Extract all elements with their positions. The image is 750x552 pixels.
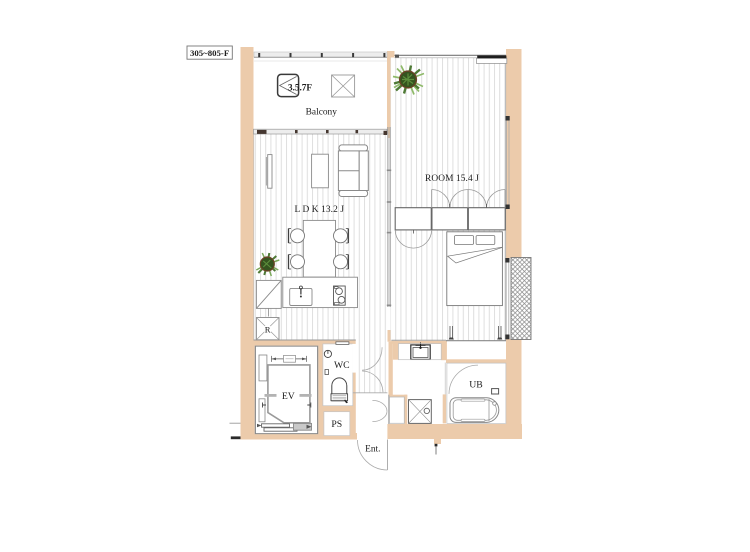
svg-text:UB: UB (469, 379, 482, 390)
svg-text:PS: PS (331, 419, 342, 430)
svg-text:3.5.7F: 3.5.7F (288, 83, 312, 93)
svg-text:Ent.: Ent. (365, 445, 380, 455)
svg-text:305~805-F: 305~805-F (190, 48, 229, 58)
svg-text:R: R (265, 325, 271, 335)
svg-text:ROOM 15.4 J: ROOM 15.4 J (425, 174, 479, 184)
svg-text:Balcony: Balcony (306, 107, 338, 117)
svg-text:WC: WC (334, 360, 350, 371)
svg-text:L D K 13.2 J: L D K 13.2 J (295, 205, 345, 215)
svg-text:EV: EV (282, 391, 295, 402)
